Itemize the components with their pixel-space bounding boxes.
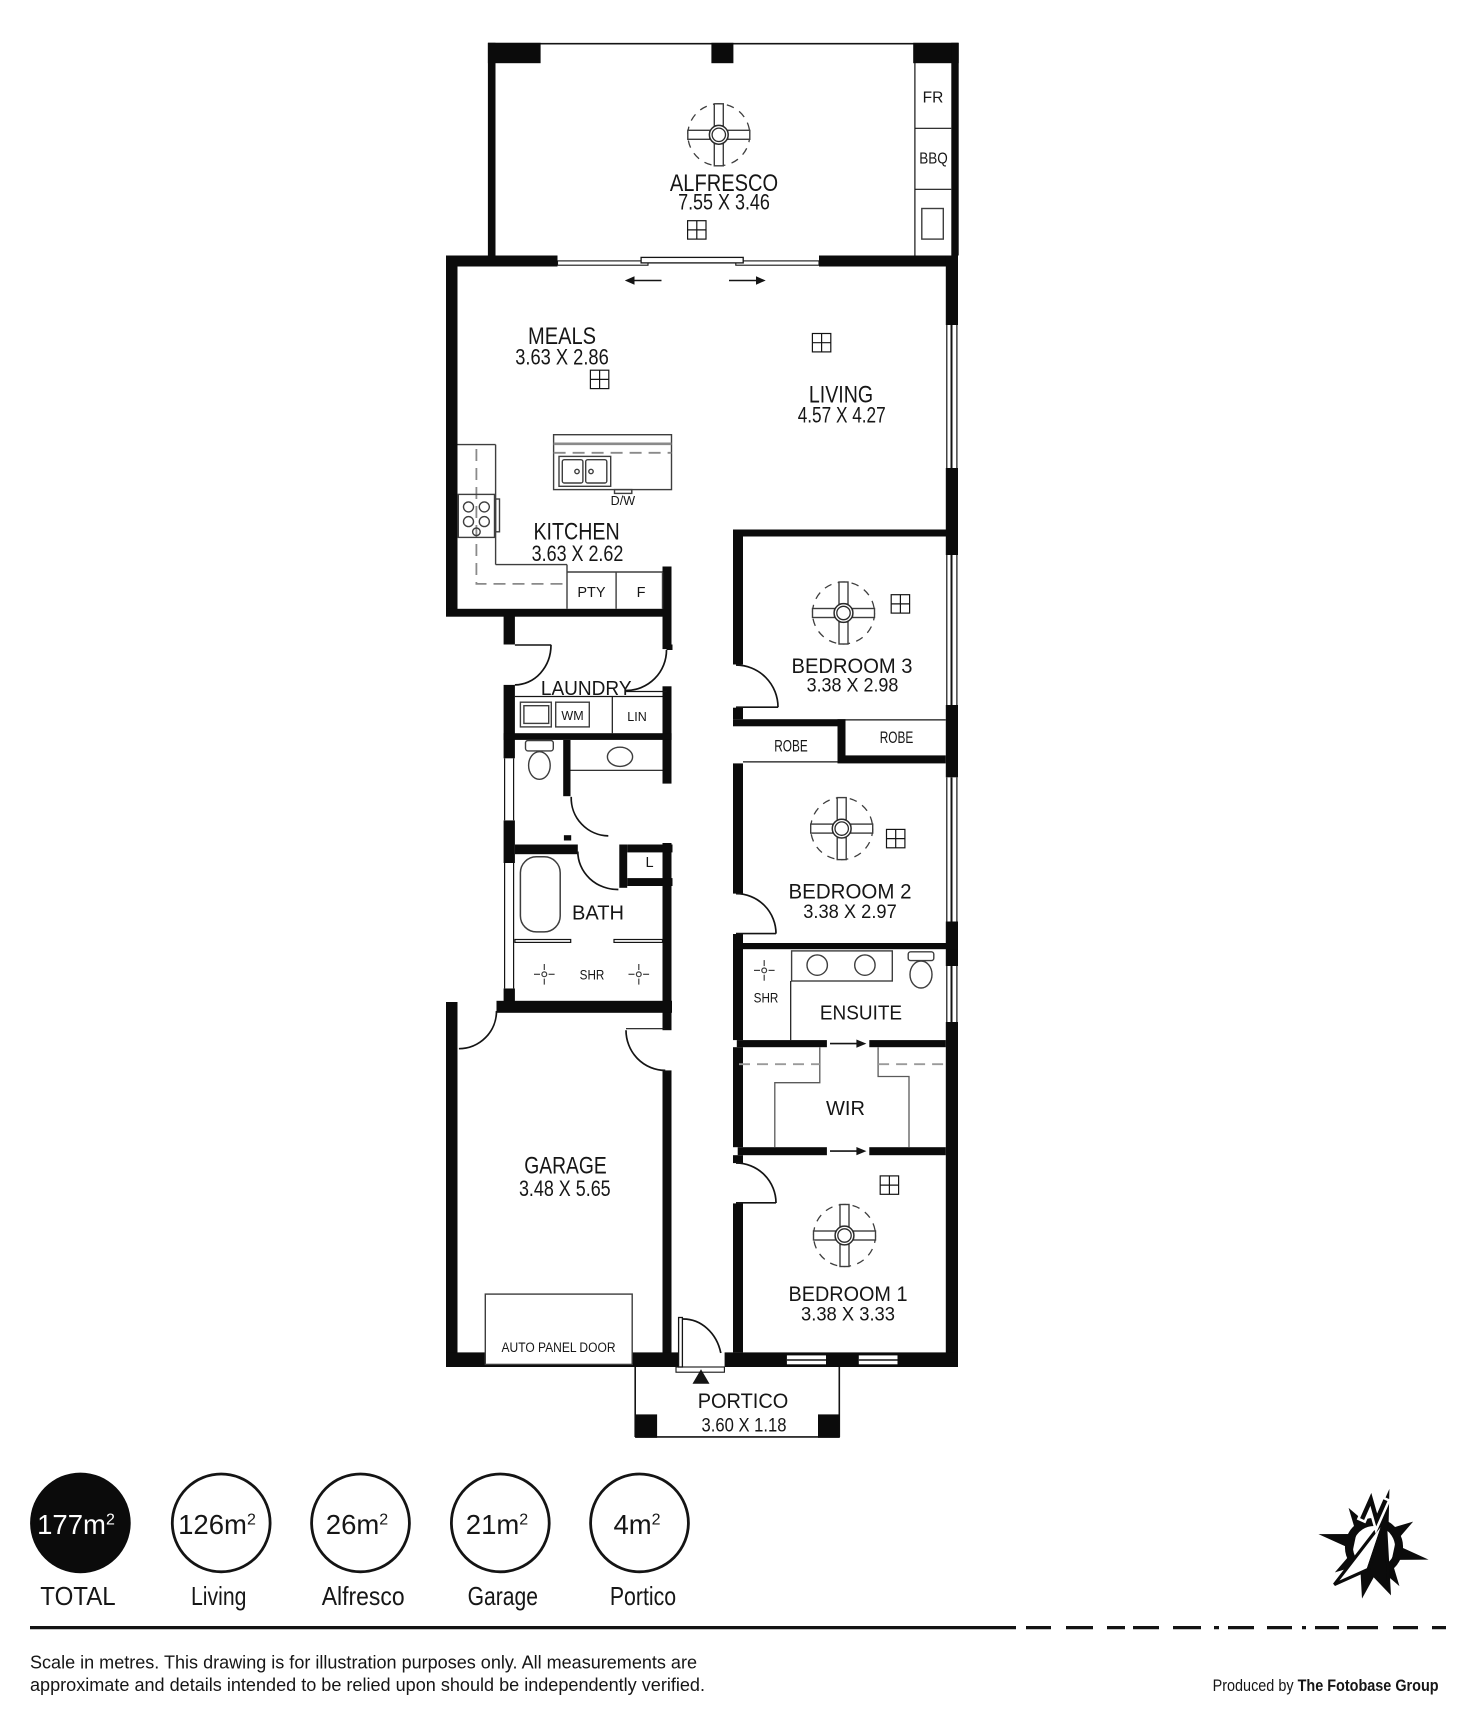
svg-text:3.38 X 2.98: 3.38 X 2.98 bbox=[807, 675, 899, 697]
svg-text:4.57 X 4.27: 4.57 X 4.27 bbox=[798, 402, 886, 427]
svg-text:BEDROOM 1: BEDROOM 1 bbox=[789, 1282, 908, 1306]
svg-text:SHR: SHR bbox=[580, 968, 605, 983]
svg-text:126m2: 126m2 bbox=[178, 1509, 256, 1540]
svg-text:L: L bbox=[645, 855, 653, 871]
svg-text:SHR: SHR bbox=[754, 991, 779, 1006]
svg-text:3.63 X 2.86: 3.63 X 2.86 bbox=[515, 345, 609, 370]
svg-text:WIR: WIR bbox=[826, 1097, 865, 1120]
svg-text:FR: FR bbox=[923, 90, 944, 107]
svg-text:F: F bbox=[637, 585, 646, 601]
svg-text:3.60 X 1.18: 3.60 X 1.18 bbox=[702, 1415, 787, 1437]
svg-text:Scale in metres. This drawing: Scale in metres. This drawing is for ill… bbox=[30, 1653, 697, 1673]
svg-text:LIN: LIN bbox=[627, 710, 646, 724]
svg-text:3.63 X 2.62: 3.63 X 2.62 bbox=[532, 541, 624, 566]
svg-text:approximate and details intend: approximate and details intended to be r… bbox=[30, 1675, 705, 1695]
svg-text:BBQ: BBQ bbox=[919, 151, 948, 168]
svg-text:ENSUITE: ENSUITE bbox=[820, 1001, 902, 1024]
svg-text:PTY: PTY bbox=[577, 585, 606, 601]
svg-text:7.55 X 3.46: 7.55 X 3.46 bbox=[678, 190, 770, 215]
svg-text:26m2: 26m2 bbox=[326, 1509, 389, 1540]
svg-text:Living: Living bbox=[191, 1581, 246, 1611]
svg-text:Garage: Garage bbox=[468, 1581, 538, 1611]
svg-text:177m2: 177m2 bbox=[37, 1509, 115, 1540]
svg-text:ROBE: ROBE bbox=[880, 729, 914, 747]
svg-text:Alfresco: Alfresco bbox=[322, 1581, 405, 1611]
svg-text:BATH: BATH bbox=[572, 901, 624, 924]
svg-text:3.48 X 5.65: 3.48 X 5.65 bbox=[519, 1176, 611, 1201]
svg-text:Produced by The Fotobase Group: Produced by The Fotobase Group bbox=[1213, 1677, 1439, 1695]
svg-text:TOTAL: TOTAL bbox=[40, 1581, 115, 1611]
svg-text:ROBE: ROBE bbox=[774, 737, 808, 755]
svg-text:3.38 X 2.97: 3.38 X 2.97 bbox=[803, 901, 897, 923]
svg-text:WM: WM bbox=[561, 709, 583, 723]
svg-text:AUTO PANEL DOOR: AUTO PANEL DOOR bbox=[502, 1340, 616, 1355]
svg-text:D/W: D/W bbox=[611, 494, 636, 508]
svg-text:21m2: 21m2 bbox=[466, 1509, 529, 1540]
svg-text:3.38 X 3.33: 3.38 X 3.33 bbox=[801, 1304, 895, 1326]
svg-text:PORTICO: PORTICO bbox=[698, 1389, 789, 1413]
svg-text:Portico: Portico bbox=[610, 1581, 676, 1611]
